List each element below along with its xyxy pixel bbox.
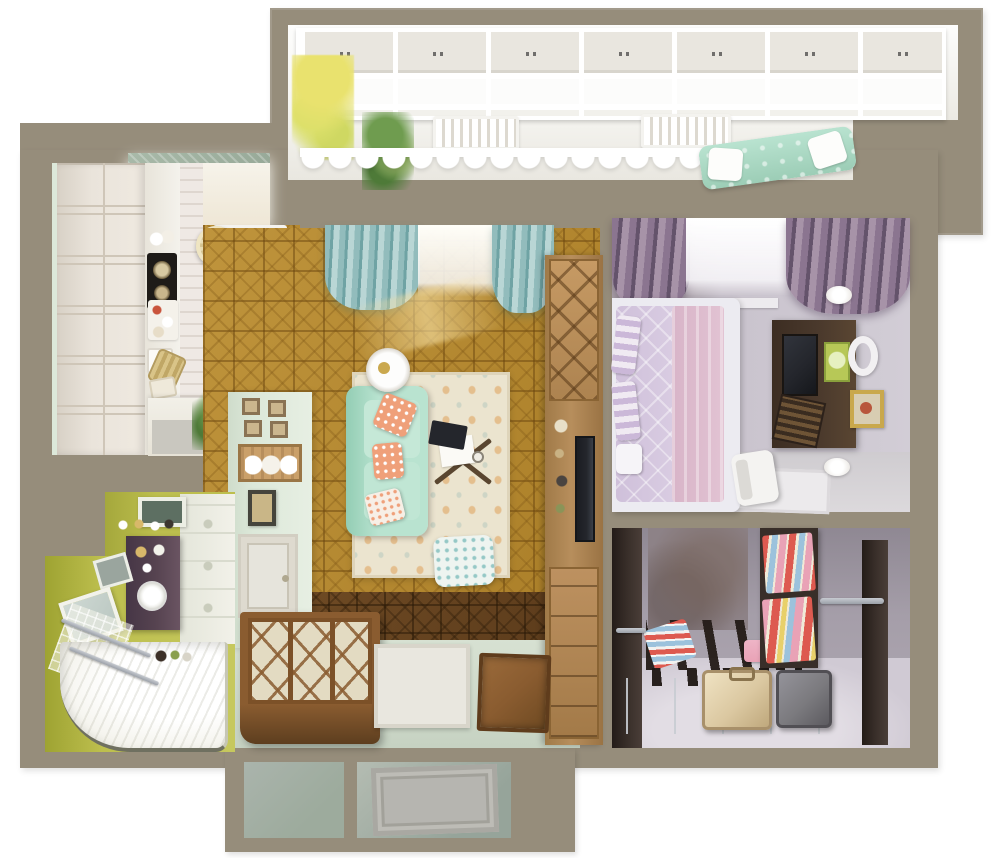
green-artwork <box>824 342 850 382</box>
suitcase-beige <box>702 670 772 730</box>
pink-throw <box>672 306 724 502</box>
coffee-table <box>428 423 498 503</box>
hanging-rod-left <box>616 628 646 633</box>
shower-tray <box>60 642 228 752</box>
folded-clothes-stack-2 <box>762 596 816 663</box>
jars <box>148 228 176 250</box>
bathroom-wall-cabinets <box>180 494 235 644</box>
counter-shelf-items <box>148 300 178 340</box>
gold-picture-frame <box>850 390 884 428</box>
yellow-flowers-plant <box>292 55 354 160</box>
kitchen-cabinets <box>52 163 145 455</box>
wardrobe-column-right <box>862 540 888 745</box>
hanging-rod-right <box>820 598 884 604</box>
wall-sconce-top <box>826 286 852 304</box>
glass-cup <box>472 451 484 463</box>
shelf-decor <box>553 415 569 525</box>
balcony-window-row <box>296 28 946 120</box>
floor-plan-render <box>0 0 1000 858</box>
bedroom <box>612 218 910 512</box>
folded-clothes-stack-1 <box>762 532 816 593</box>
vestibule-cell-1 <box>244 762 344 838</box>
clothes-shelving <box>760 528 818 668</box>
media-wall-unit <box>545 255 603 745</box>
vestibule-cell-2 <box>357 762 511 838</box>
bathroom-shelf-items <box>115 518 175 532</box>
kitchen-wall-top <box>203 163 270 225</box>
bedroom-sheer-curtain <box>686 218 790 296</box>
tray-side-table <box>366 348 410 392</box>
wall-tv-cabinet <box>772 320 856 448</box>
slatted-box <box>772 394 827 449</box>
picture-frames-grid <box>242 398 290 440</box>
door-leaf <box>371 764 499 836</box>
vanity-accessories <box>131 542 175 576</box>
concrete-wall-panel <box>648 528 748 630</box>
coral-pillow-2 <box>371 442 404 480</box>
tv-screen <box>575 436 595 542</box>
suitcase-grey <box>776 670 832 728</box>
purple-curtain-left <box>612 218 690 310</box>
balcony-radiator-2 <box>641 114 731 148</box>
living-room <box>203 225 610 765</box>
white-chair <box>730 449 780 507</box>
plate-rack-niche <box>238 444 302 482</box>
lattice-cabinet-top <box>549 259 599 401</box>
pouf <box>433 534 496 587</box>
bedroom-tv-screen <box>782 334 818 396</box>
bathroom <box>45 492 235 760</box>
white-pillow <box>616 444 642 474</box>
storage-chest-bench <box>240 612 380 744</box>
chest-lattice-top <box>248 618 372 704</box>
round-sink <box>137 581 167 611</box>
doormat <box>477 653 552 733</box>
toiletries <box>153 648 197 664</box>
laptop <box>428 420 468 450</box>
glazed-entry-door <box>374 644 470 728</box>
drawer-chest-bottom <box>549 567 599 739</box>
wall-sconce-bottom <box>824 458 850 476</box>
door-glass-panes <box>384 656 462 716</box>
balcony-radiator-1 <box>433 116 519 150</box>
round-mirror <box>848 336 878 376</box>
dressing-room <box>612 528 910 748</box>
balcony <box>288 25 958 180</box>
